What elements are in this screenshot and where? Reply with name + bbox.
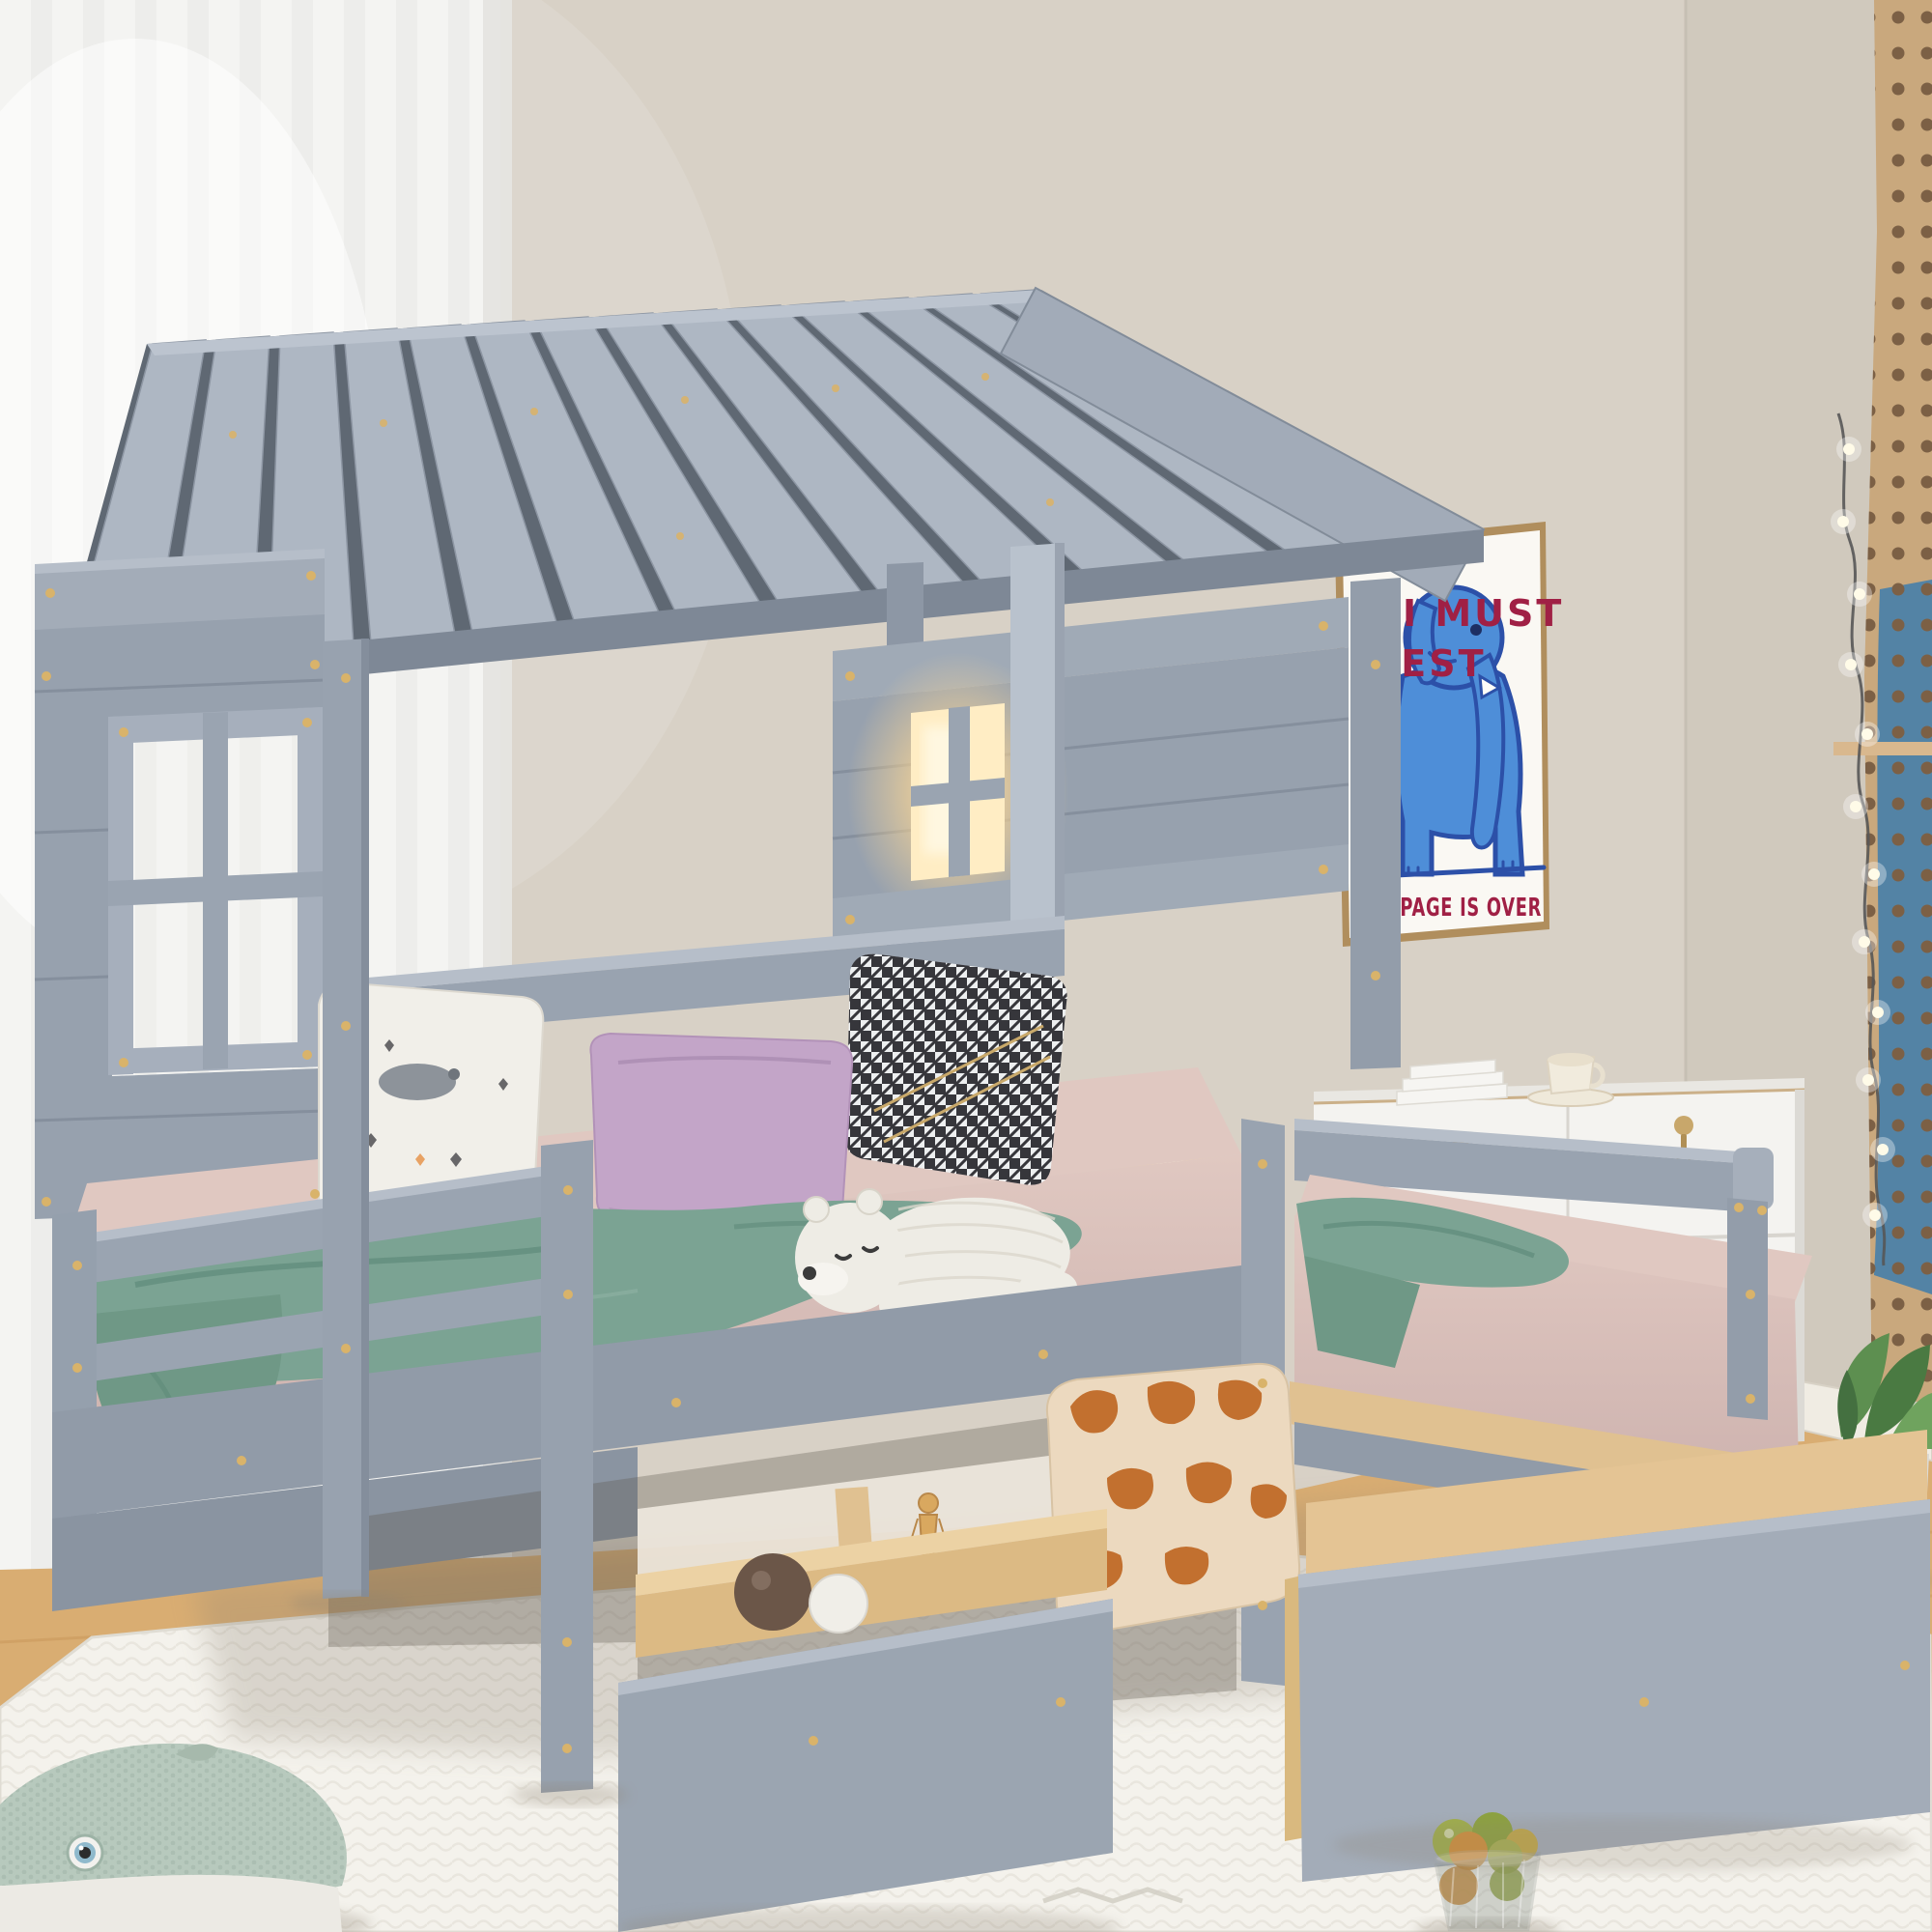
post-guard-right-end [541,1140,593,1793]
scene-svg: Gray wooden house-frame kids bed with sl… [0,0,1932,1932]
bear-nose [803,1266,816,1280]
toy-ball-brown [734,1553,811,1631]
books-stack [1397,1060,1507,1105]
drawer-right [1285,1430,1930,1882]
post-back-right [1350,578,1401,1069]
pegboard-shelf [1833,742,1932,755]
whale-belly [0,1875,342,1932]
bear-ear [857,1189,882,1214]
right-house-wall [833,597,1349,945]
toy-ball-white [810,1575,867,1633]
bedroom-photo: Gray wooden house-frame kids bed with sl… [0,0,1932,1932]
left-house-wall [35,549,325,1219]
raccoon-print [379,1064,456,1100]
post-front-mid [1010,543,1065,976]
pillow-houndstooth [845,954,1066,1185]
poster-line1: I MUST [1403,592,1564,635]
left-window [108,707,323,1076]
bear-ear [804,1197,829,1222]
whale-eye [68,1835,102,1870]
post-front-left [323,639,369,1599]
post-corner-right [1727,1198,1768,1420]
